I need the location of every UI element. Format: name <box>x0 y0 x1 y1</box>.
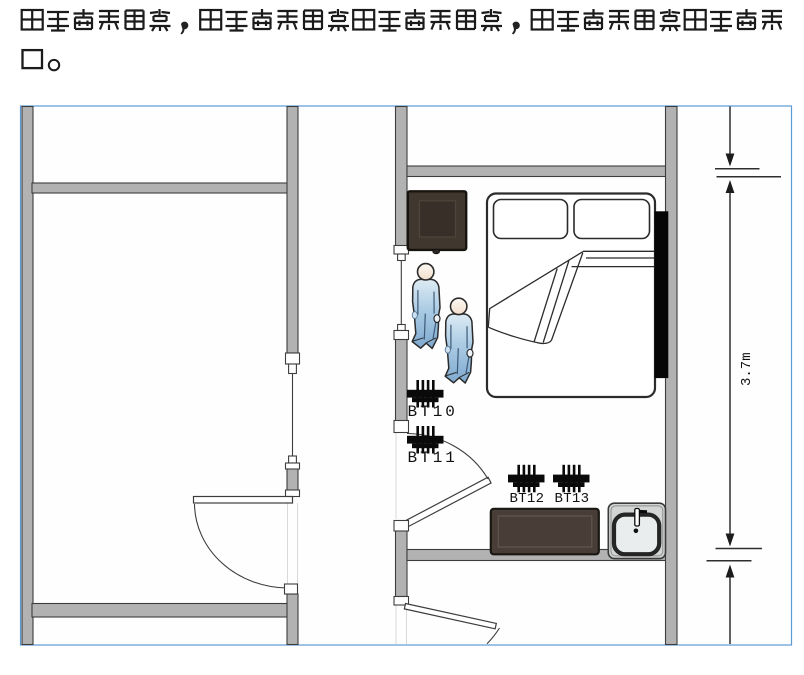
svg-text:3.7m: 3.7m <box>739 352 755 386</box>
svg-text:BT10: BT10 <box>408 403 458 421</box>
svg-text:BT12: BT12 <box>510 491 545 507</box>
svg-text:BT13: BT13 <box>555 491 590 507</box>
svg-text:BT11: BT11 <box>408 449 458 467</box>
